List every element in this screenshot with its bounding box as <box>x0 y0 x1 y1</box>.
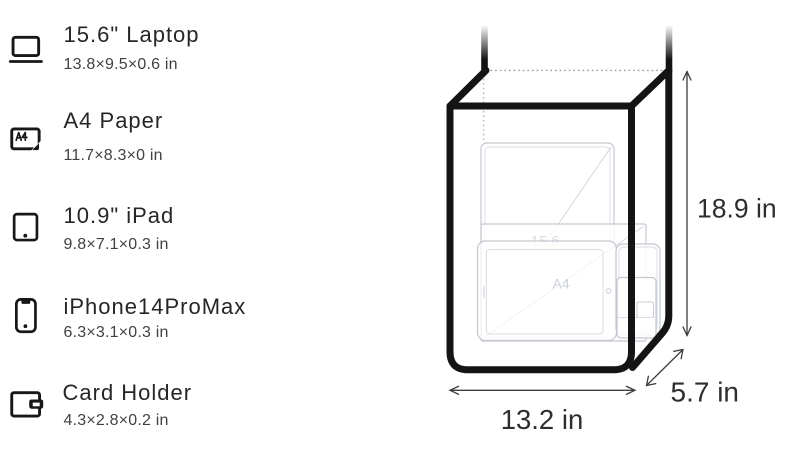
svg-text:13.2 in: 13.2 in <box>501 404 584 435</box>
svg-text:5.7 in: 5.7 in <box>671 377 740 408</box>
svg-text:18.9 in: 18.9 in <box>697 194 777 224</box>
svg-text:A4: A4 <box>553 276 570 292</box>
